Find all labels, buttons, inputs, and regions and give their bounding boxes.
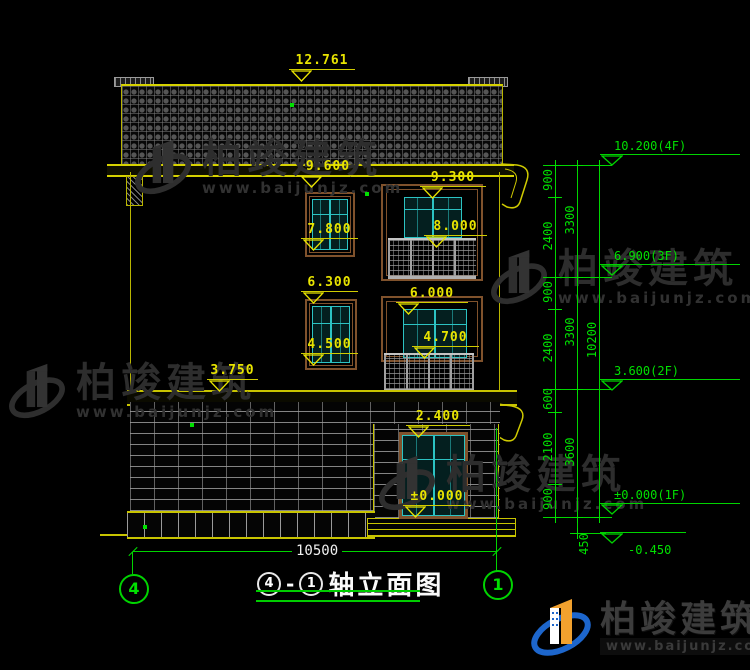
dim-arrow-triangle (398, 303, 419, 315)
elevation-dim: 7.800 (301, 223, 358, 239)
elevation-dim: 12.761 (289, 54, 355, 70)
chain-dim-label: 3300 (563, 310, 577, 354)
tick-cross (550, 160, 561, 171)
elevation-dim-text: 6.000 (396, 287, 468, 301)
plinth (127, 511, 375, 539)
elevation-dim-text: 8.000 (424, 220, 487, 234)
cad-point (143, 525, 147, 529)
level-marker-text: 3.600(2F) (614, 364, 740, 379)
chain-dim-label: 3300 (563, 198, 577, 242)
axis-bubble-right: 1 (483, 570, 513, 600)
elevation-dim-text: 12.761 (289, 54, 355, 68)
level-marker: 6.900(3F) (600, 249, 740, 265)
tick-cross (550, 304, 561, 315)
canopy-ornament-right (496, 400, 532, 444)
chain-dim-label: 2400 (541, 326, 555, 370)
level-marker-text: -0.450 (628, 543, 671, 558)
elevation-dim: 9.600 (299, 160, 357, 176)
elevation-dim: 3.750 (207, 364, 258, 380)
elevation-dim: ±0.000 (403, 490, 471, 506)
dim-arrow-triangle (422, 187, 443, 199)
cad-point (290, 103, 294, 107)
watermark: 柏竣建筑 www.baijunjz.com (132, 136, 403, 200)
level-marker-text: 10.200(4F) (614, 139, 740, 154)
elevation-dim-text: 3.750 (207, 364, 258, 378)
elevation-dim-text: 6.300 (301, 276, 358, 290)
gable-ornament-right (499, 160, 535, 212)
chain-dim-label: 2400 (541, 214, 555, 258)
watermark-site: www.baijunjz.com (558, 289, 750, 307)
tick-cross (550, 479, 561, 490)
dim-arrow-triangle (209, 380, 230, 392)
cad-point (190, 423, 194, 427)
elevation-dim: 4.700 (412, 331, 479, 347)
elevation-dim: 8.000 (424, 220, 487, 236)
tick-cross (572, 528, 583, 539)
entrance-steps (367, 518, 516, 537)
dim-arrow-triangle (426, 236, 447, 248)
chain-dim-label: 10200 (585, 318, 599, 362)
elevation-dim: 4.500 (301, 338, 358, 354)
brand-logo-icon (528, 594, 594, 662)
level-marker: 10.200(4F) (600, 139, 740, 155)
dim-arrow-triangle (414, 347, 435, 359)
title-underline (256, 590, 420, 602)
tick-cross (572, 272, 583, 283)
cad-point (365, 192, 369, 196)
tick-cross (550, 512, 561, 523)
tick-cross (550, 272, 561, 283)
dim-arrow-triangle (405, 506, 426, 518)
overall-width-dim: 10500 (292, 543, 342, 559)
elevation-dim: 6.000 (396, 287, 468, 303)
elevation-dim-text: 9.300 (420, 171, 486, 185)
level-marker-negative: -0.450 (600, 532, 686, 533)
dim-chain-line (577, 165, 578, 533)
chain-dim-label: 3600 (563, 430, 577, 474)
dim-arrow-triangle (601, 533, 623, 544)
tick-cross (550, 407, 561, 418)
dim-arrow-triangle (408, 426, 429, 438)
brand-name: 柏竣建筑 (600, 602, 750, 638)
elevation-dim: 6.300 (301, 276, 358, 292)
tick-cross (550, 384, 561, 395)
dim-arrow-triangle (303, 354, 324, 366)
level-marker-text: 6.900(3F) (614, 249, 740, 264)
level-marker: 3.600(2F) (600, 364, 740, 380)
axis-line-left (132, 552, 133, 574)
tick-cross (572, 384, 583, 395)
elevation-dim-text: ±0.000 (403, 490, 471, 504)
tick-cross (550, 192, 561, 203)
dim-arrow-triangle (303, 292, 324, 304)
dim-chain-line (599, 165, 600, 517)
tick-cross (572, 512, 583, 523)
elevation-dim-text: 9.600 (299, 160, 357, 174)
dim-arrow-triangle (303, 239, 324, 251)
brand-logo: 柏竣建筑 www.baijunjz.com (528, 594, 750, 662)
elevation-dim-text: 7.800 (301, 223, 358, 237)
elevation-dim-text: 4.500 (301, 338, 358, 352)
axis-bubble-left: 4 (119, 574, 149, 604)
dim-arrow-triangle (301, 176, 322, 188)
dim-arrow-triangle (291, 70, 312, 82)
tick-cross (594, 160, 605, 171)
brand-site: www.baijunjz.com (600, 638, 750, 655)
tick-cross (572, 160, 583, 171)
dim-arrow-triangle (601, 380, 623, 391)
elevation-dim: 2.400 (406, 410, 470, 426)
elevation-dim-text: 2.400 (406, 410, 470, 424)
watermark-site: www.baijunjz.com (76, 403, 277, 421)
watermark-logo-icon (6, 360, 68, 424)
dim-chain-line (555, 165, 556, 517)
dim-arrow-triangle (601, 265, 623, 276)
cad-elevation-drawing: 10500 4 1 4 - 1 轴立面图 柏竣建筑 www.baijunjz.c… (0, 0, 750, 670)
level-marker-text: ±0.000(1F) (614, 488, 740, 503)
chain-dim-label: 2100 (541, 425, 555, 469)
watermark-logo-icon (132, 136, 194, 200)
tick-cross (594, 512, 605, 523)
level-marker: ±0.000(1F) (600, 488, 740, 504)
elevation-dim: 9.300 (420, 171, 486, 187)
elevation-dim-text: 4.700 (412, 331, 479, 345)
